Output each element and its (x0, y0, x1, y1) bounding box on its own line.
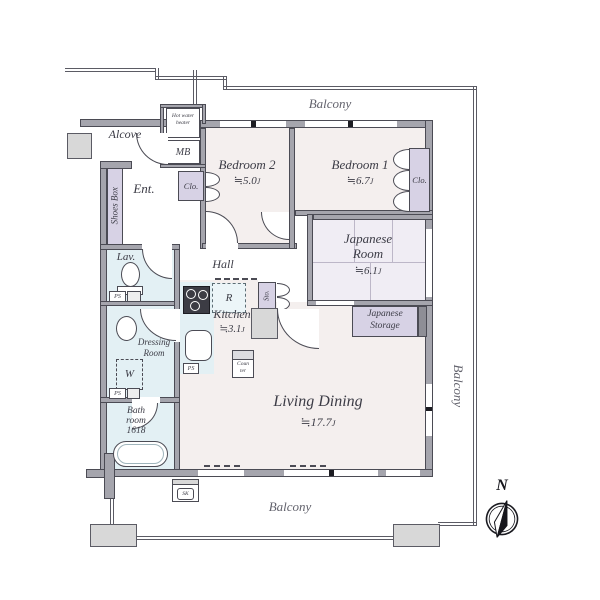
utility-box (127, 291, 141, 302)
pillar (67, 133, 92, 159)
living-window-bottom-3 (386, 469, 420, 477)
wall-japanese-left (307, 214, 313, 306)
bathtub-inner (117, 444, 164, 464)
balcony-rail-right (473, 86, 477, 526)
balcony-right-label: Balcony (451, 362, 465, 410)
wall-alcove-top (80, 119, 170, 127)
hot-water-heater-label-2: heater (166, 121, 200, 127)
wall-meterbox-right (202, 104, 206, 124)
kitchen-label: Kitchen (206, 308, 258, 321)
wall-bottom (101, 469, 433, 477)
kitchen-hood-dashes (215, 278, 257, 280)
counter-label-2: ter (232, 369, 254, 375)
pipe-space: PS (109, 291, 126, 302)
window-tick (348, 121, 353, 127)
bathroom-size: 1618 (114, 427, 158, 437)
bedroom2-size-value: ≒5.0 (234, 175, 257, 187)
wall-left (100, 168, 107, 477)
wall-fin-vertical (104, 453, 115, 499)
burner (198, 290, 208, 300)
living-dining-size-value: ≒17.7 (301, 415, 332, 429)
bedroom2-door-opening (206, 243, 238, 249)
shoes-box-label: Shoes Box (110, 179, 119, 233)
balcony-rail-top (223, 86, 477, 90)
utility-box (127, 388, 140, 399)
japanese-storage-label-1: Japanese (352, 310, 418, 320)
compass-north-label: N (495, 477, 509, 494)
wall-hall-wet (174, 249, 180, 470)
storage-small-label: Sto. (263, 285, 270, 307)
pillar (393, 524, 440, 547)
dressing-room-label-1: Dressing (124, 338, 184, 347)
pipe-space-label: PS (114, 294, 121, 300)
compass-needle (482, 497, 522, 542)
living-window-bottom-1 (198, 469, 244, 477)
japanese-room-label-1: Japanese (318, 232, 418, 246)
kitchen-size-value: ≒3.1 (219, 324, 241, 335)
bedroom1-size: ≒6.7J (300, 176, 420, 188)
pipe-space-label: PS (188, 366, 195, 372)
slop-sink: SK (177, 488, 194, 500)
balcony-rail-bottom (137, 536, 393, 540)
bedroom2-size: ≒5.0J (204, 176, 290, 188)
kitchen-size: ≒3.1J (206, 324, 258, 335)
washer-label: W (116, 369, 143, 381)
shutter-dashes (290, 465, 326, 467)
balcony-bottom-label: Balcony (250, 500, 330, 514)
slop-sink-rim (172, 479, 199, 485)
alcove-label: Alcove (98, 128, 152, 141)
japanese-room-opening (316, 301, 354, 305)
compass: N (481, 473, 523, 547)
tatami-line (313, 262, 425, 263)
site-boundary-line (155, 76, 227, 80)
balcony-rail-corner (438, 522, 477, 526)
hot-water-heater-label-1: Hot water (166, 114, 200, 120)
shutter-dashes (204, 465, 240, 467)
japanese-room-size: ≒6.1J (318, 266, 418, 278)
bedroom1-size-unit: J (370, 177, 374, 186)
refrigerator-label: R (226, 292, 233, 304)
living-dining-size-unit: J (332, 418, 336, 428)
floor-plan: Shoes Box Clo. Clo. Japanese Storage Sto… (0, 0, 600, 600)
slop-sink-label: SK (182, 491, 188, 497)
bedroom2-closet: Clo. (178, 171, 204, 201)
wall-bedroom-divider (289, 128, 295, 249)
hall-label: Hall (206, 258, 240, 271)
dressing-room-label-2: Room (124, 349, 184, 358)
bedroom1-label: Bedroom 1 (300, 158, 420, 172)
site-boundary-line (65, 68, 155, 72)
bedroom2-label: Bedroom 2 (204, 158, 290, 172)
window-tick (426, 407, 432, 411)
living-dining-size: ≒17.7J (230, 416, 406, 429)
japanese-room-window (425, 229, 433, 297)
pillar (90, 524, 137, 547)
japanese-room-size-value: ≒6.1 (355, 265, 378, 277)
lavatory-label: Lav. (108, 252, 144, 264)
wall-storage-right (418, 306, 427, 337)
wall-japanese-top (313, 214, 433, 220)
pipe-space: PS (109, 388, 126, 399)
folding-door-leaf (277, 283, 290, 297)
living-dining-label: Living Dining (230, 394, 406, 411)
pipe-space-label: PS (114, 391, 121, 397)
pipe-space: PS (183, 363, 199, 374)
meter-box-label: MB (176, 147, 190, 158)
japanese-room-label-2: Room (318, 247, 418, 261)
japanese-room-size-unit: J (378, 267, 382, 276)
counter-top (233, 351, 253, 360)
kitchen-size-unit: J (241, 325, 244, 334)
bedroom2-closet-label: Clo. (184, 181, 198, 191)
meter-box: MB (166, 140, 200, 164)
entrance-label: Ent. (126, 182, 162, 196)
toilet-bowl (121, 262, 140, 287)
japanese-storage-label-2: Storage (352, 322, 418, 332)
bedroom2-size-unit: J (257, 177, 261, 186)
burner (190, 301, 200, 311)
balcony-top-label: Balcony (280, 97, 380, 111)
window-tick (251, 121, 256, 127)
wall-fin-horizontal (86, 469, 106, 478)
counter-label-1: Coun (232, 362, 254, 368)
burner (186, 289, 196, 299)
site-boundary-line (110, 499, 114, 525)
bedroom1-size-value: ≒6.7 (347, 175, 370, 187)
window-tick (329, 470, 334, 476)
